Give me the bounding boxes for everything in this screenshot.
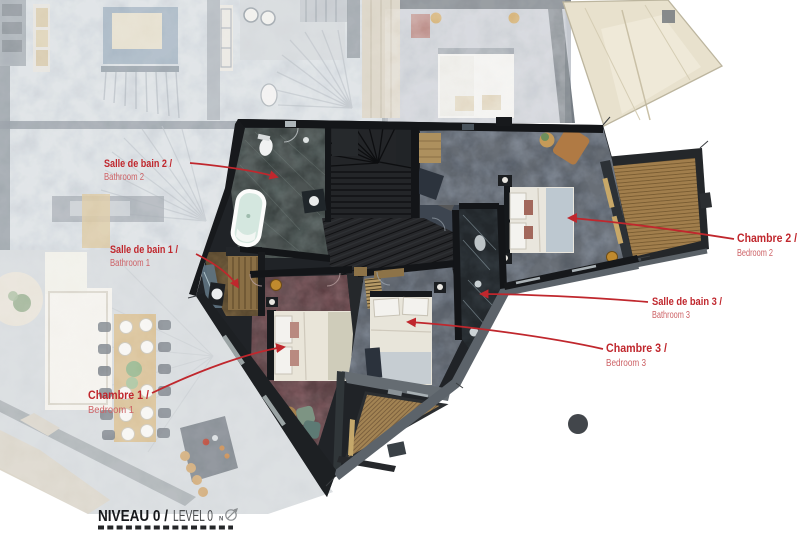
svg-text:Chambre 1 /: Chambre 1 / [88,388,150,402]
svg-text:Bedroom 2: Bedroom 2 [737,247,773,259]
svg-text:Bathroom 3: Bathroom 3 [652,310,690,321]
svg-text:LEVEL 0: LEVEL 0 [173,508,213,525]
svg-text:Salle de bain 3 /: Salle de bain 3 / [652,296,722,308]
svg-text:Bathroom 1: Bathroom 1 [110,258,150,269]
svg-text:Bedroom 3: Bedroom 3 [606,357,646,369]
svg-text:N: N [219,517,223,523]
svg-text:Chambre 2 /: Chambre 2 / [737,231,798,245]
svg-text:Bathroom 2: Bathroom 2 [104,172,144,183]
svg-text:Salle de bain 1 /: Salle de bain 1 / [110,244,178,256]
svg-text:Salle de bain 2 /: Salle de bain 2 / [104,158,172,170]
svg-text:Chambre 3 /: Chambre 3 / [606,341,668,355]
svg-text:Bedroom 1: Bedroom 1 [88,404,134,416]
svg-text:NIVEAU 0 /: NIVEAU 0 / [98,508,169,525]
